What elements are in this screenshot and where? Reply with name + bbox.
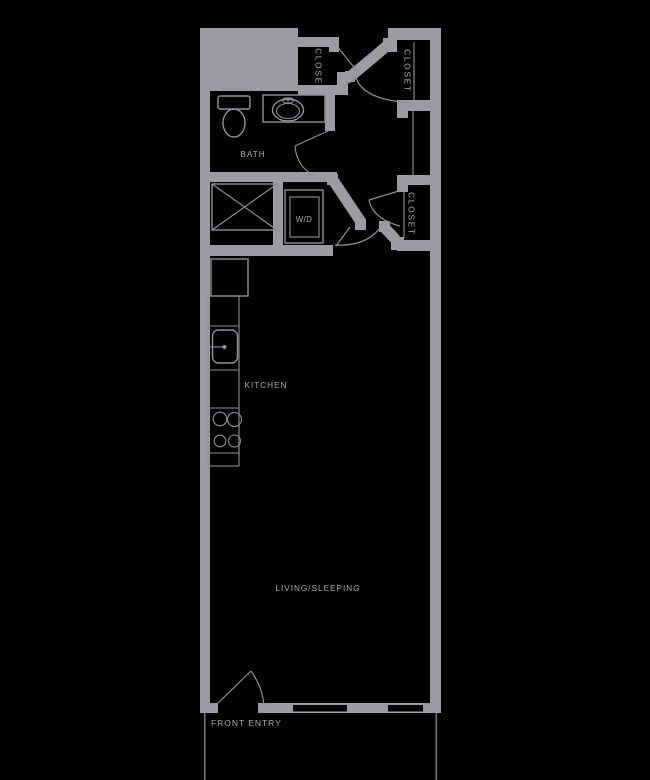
patio-line-left [204, 713, 206, 780]
wall-wd-left [273, 182, 283, 253]
sink-faucet-dot [287, 100, 289, 102]
wall-diagonal-upper-cap [383, 38, 397, 52]
floor-plan-page: CLOSET CLOSET CLOSET BATH W/D KITCHEN LI… [0, 0, 650, 780]
wall-diagonal-lower-b-foot [391, 237, 404, 250]
wall-service-bottom [200, 245, 333, 256]
wall-diagonal-lower-a-cap [327, 174, 338, 185]
label-washer-dryer: W/D [296, 215, 313, 224]
wall-bath-right [325, 85, 335, 131]
label-kitchen: KITCHEN [245, 381, 288, 390]
window-left [293, 705, 347, 712]
wall-diagonal-upper-foot [345, 71, 355, 82]
floor-plan-svg: CLOSET CLOSET CLOSET BATH W/D KITCHEN LI… [0, 0, 650, 780]
wall-right [430, 28, 441, 713]
label-closet-top-right: CLOSET [403, 49, 412, 93]
wall-closet-tl-top [298, 37, 334, 47]
wall-closet-mr-tab [397, 175, 408, 192]
wall-closet-tr-top [388, 28, 441, 40]
wall-diagonal-lower-a-foot [355, 219, 366, 230]
wall-solid-block [200, 28, 298, 91]
label-front-entry: FRONT ENTRY [211, 718, 282, 728]
kitchen-faucet-dot [222, 345, 226, 349]
wall-bottom-left-foot [200, 703, 218, 713]
wall-closet-tl-jamb [329, 37, 339, 52]
label-bath: BATH [240, 150, 265, 159]
patio-line-right [436, 713, 438, 780]
label-closet-mid-right: CLOSET [407, 192, 416, 236]
label-closet-top-left: CLOSET [314, 48, 323, 92]
window-right [388, 705, 423, 712]
label-living-sleeping: LIVING/SLEEPING [275, 584, 360, 593]
